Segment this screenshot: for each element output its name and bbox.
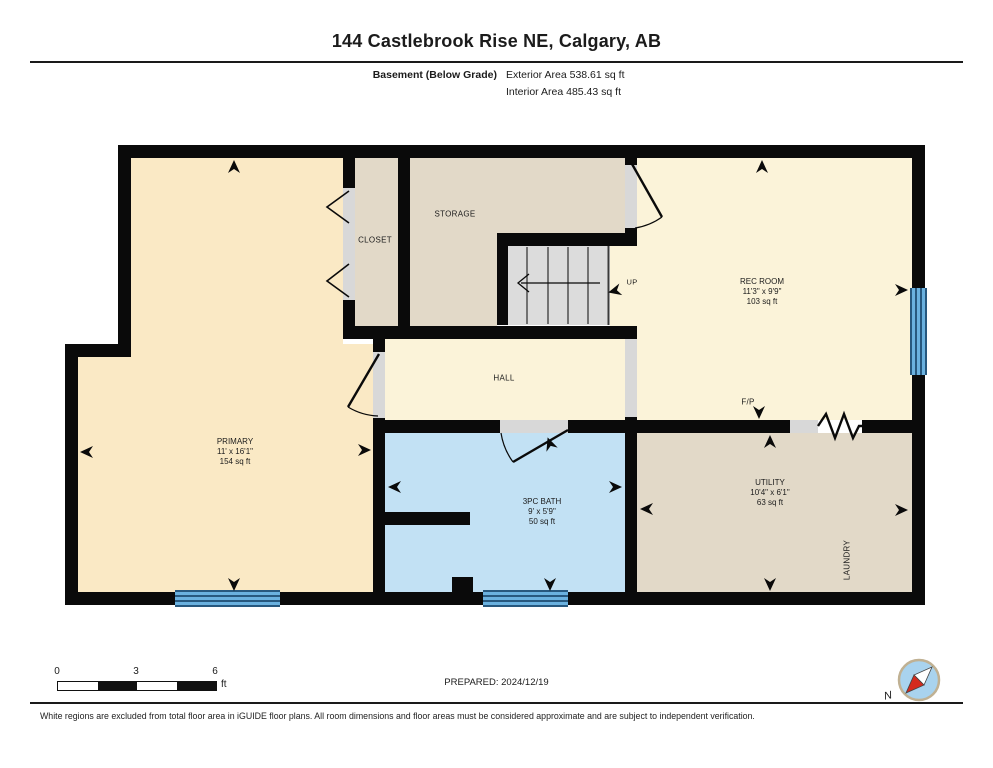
window-bath (483, 590, 568, 607)
page-title: 144 Castlebrook Rise NE, Calgary, AB (0, 31, 993, 52)
floorplan-page: 144 Castlebrook Rise NE, Calgary, AB Bas… (0, 0, 993, 768)
storage-label: STORAGE (434, 210, 475, 219)
wall-closet-storage (398, 158, 410, 326)
hall-rec-opening (625, 339, 637, 417)
utility-area: 63 sq ft (750, 498, 789, 508)
wall-bath-bottom-stub (452, 577, 473, 592)
storage-door-threshold (625, 165, 637, 228)
wall-rec-utility-right (862, 420, 912, 433)
wall-primary-bath (373, 418, 385, 592)
header-divider (30, 61, 963, 63)
room-storage-floor-upper (410, 158, 625, 233)
closet-label: CLOSET (358, 236, 392, 245)
rec-room-dims: 11'3" x 9'9" (740, 287, 784, 297)
fireplace-label: F/P (741, 398, 754, 407)
bath-dims: 9' x 5'9" (523, 507, 562, 517)
primary-area: 154 sq ft (217, 457, 253, 467)
window-rec (910, 288, 927, 375)
utility-label: UTILITY 10'4" x 6'1" 63 sq ft (750, 478, 789, 508)
room-primary-floor-upper (131, 158, 343, 344)
wall-bath-stub (385, 512, 470, 525)
prepared-date: PREPARED: 2024/12/19 (0, 677, 993, 688)
rec-room-area: 103 sq ft (740, 297, 784, 307)
bath-door-threshold (500, 420, 568, 433)
wall-rec-utility-left (568, 420, 790, 433)
room-storage-floor-lower (410, 233, 497, 326)
floor-label: Basement (Below Grade) (0, 69, 497, 81)
hall-label: HALL (493, 374, 514, 383)
disclaimer-text: White regions are excluded from total fl… (40, 711, 755, 721)
utility-name: UTILITY (750, 478, 789, 488)
primary-label: PRIMARY 11' x 16'1" 154 sq ft (217, 437, 253, 467)
utility-dims: 10'4" x 6'1" (750, 488, 789, 498)
closet-door-threshold (343, 188, 355, 300)
primary-door-threshold (373, 352, 385, 418)
rec-room-name: REC ROOM (740, 277, 784, 287)
wall-top (118, 145, 925, 158)
stairs-floor (508, 246, 608, 325)
compass-north-label: N (883, 689, 893, 702)
wall-bath-utility (625, 417, 637, 592)
scale-tick-0: 0 (45, 666, 69, 677)
wall-bath-top-left (385, 420, 500, 433)
bath-area: 50 sq ft (523, 517, 562, 527)
footer-divider (30, 702, 963, 704)
wall-primary-hall-upper (373, 326, 385, 352)
room-primary-floor-lower (78, 344, 373, 592)
wall-hall-top (343, 326, 637, 339)
primary-name: PRIMARY (217, 437, 253, 447)
wall-closet-left-lower (343, 300, 355, 326)
wall-left-lower (65, 344, 78, 605)
scale-tick-6: 6 (203, 666, 227, 677)
window-primary (175, 590, 280, 607)
wall-storage-rec-stub (625, 158, 637, 165)
stairs-up-label: UP (626, 278, 637, 287)
bath-label: 3PC BATH 9' x 5'9" 50 sq ft (523, 497, 562, 527)
wall-right (912, 145, 925, 605)
room-utility-floor (637, 433, 912, 592)
wall-closet-left-upper (343, 158, 355, 188)
bath-name: 3PC BATH (523, 497, 562, 507)
laundry-label: LAUNDRY (843, 540, 852, 580)
wall-stairs-top (497, 233, 637, 246)
exterior-area: Exterior Area 538.61 sq ft (506, 69, 624, 81)
wall-left-upper (118, 145, 131, 357)
primary-dims: 11' x 16'1" (217, 447, 253, 457)
interior-area: Interior Area 485.43 sq ft (506, 86, 621, 98)
scale-tick-3: 3 (124, 666, 148, 677)
fireplace-gap (790, 420, 818, 433)
wall-stairs-left (497, 246, 508, 325)
rec-room-label: REC ROOM 11'3" x 9'9" 103 sq ft (740, 277, 784, 307)
